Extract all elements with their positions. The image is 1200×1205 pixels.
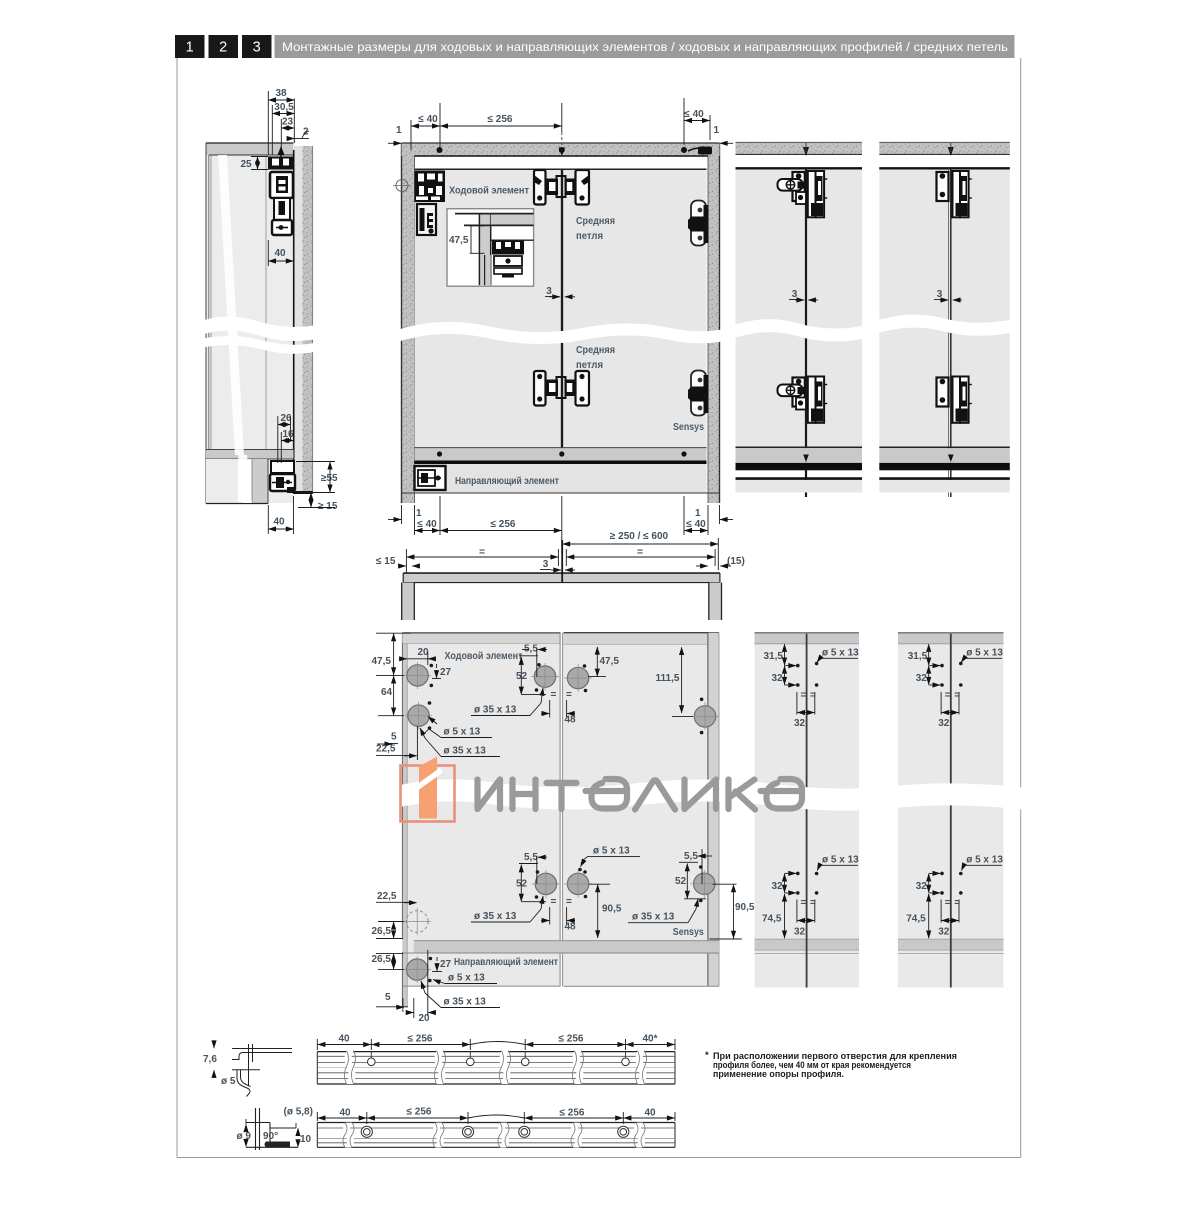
svg-text:40: 40 <box>338 1034 350 1045</box>
svg-text:≤ 256: ≤ 256 <box>559 1034 584 1045</box>
svg-text:ø 5 x 13: ø 5 x 13 <box>822 855 859 866</box>
svg-text:52: 52 <box>516 879 528 890</box>
svg-text:Средняя: Средняя <box>576 344 615 356</box>
svg-text:3: 3 <box>543 559 549 570</box>
svg-text:22,5: 22,5 <box>376 744 396 755</box>
svg-text:ø 9: ø 9 <box>237 1131 252 1142</box>
svg-text:=: = <box>637 547 643 558</box>
svg-text:32: 32 <box>794 718 806 729</box>
svg-text:22,5: 22,5 <box>377 891 397 902</box>
svg-text:Направляющий элемент: Направляющий элемент <box>455 475 559 487</box>
svg-text:ø 5 x 13: ø 5 x 13 <box>448 973 485 984</box>
svg-text:30,5: 30,5 <box>274 102 294 113</box>
svg-text:64: 64 <box>381 687 393 698</box>
svg-text:≤ 256: ≤ 256 <box>408 1034 433 1045</box>
svg-text:Монтажные размеры для ходовых: Монтажные размеры для ходовых и направля… <box>282 40 1008 54</box>
svg-text:≤ 40: ≤ 40 <box>417 519 437 530</box>
svg-text:20: 20 <box>417 647 429 658</box>
svg-text:≤ 40: ≤ 40 <box>686 519 706 530</box>
svg-text:Ходовой элемент: Ходовой элемент <box>445 650 523 662</box>
svg-text:74,5: 74,5 <box>762 914 782 925</box>
svg-text:48: 48 <box>565 715 577 726</box>
svg-text:32: 32 <box>772 673 784 684</box>
svg-text:≤ 256: ≤ 256 <box>488 114 513 125</box>
svg-text:1: 1 <box>416 508 422 519</box>
svg-text:≤ 40: ≤ 40 <box>418 114 438 125</box>
svg-text:23: 23 <box>282 117 294 128</box>
svg-text:Средняя: Средняя <box>576 215 615 227</box>
svg-text:1: 1 <box>396 125 402 136</box>
svg-text:38: 38 <box>275 88 287 99</box>
svg-text:3: 3 <box>937 289 943 300</box>
svg-text:2: 2 <box>303 127 309 138</box>
svg-text:40: 40 <box>339 1108 351 1119</box>
svg-text:90,5: 90,5 <box>735 902 755 913</box>
svg-text:40: 40 <box>274 248 286 259</box>
svg-text:40: 40 <box>273 517 285 528</box>
svg-text:40: 40 <box>644 1108 656 1119</box>
svg-text:≤ 256: ≤ 256 <box>407 1107 432 1118</box>
svg-text:16: 16 <box>282 429 294 440</box>
svg-text:≤ 15: ≤ 15 <box>376 556 396 567</box>
svg-text:=: = <box>566 897 572 908</box>
svg-text:25: 25 <box>240 159 252 170</box>
svg-text:ø 35 x 13: ø 35 x 13 <box>474 911 517 922</box>
svg-text:40*: 40* <box>642 1034 657 1045</box>
svg-text:1: 1 <box>186 40 194 56</box>
svg-text:52: 52 <box>675 876 687 887</box>
svg-text:5,5: 5,5 <box>524 852 538 863</box>
svg-text:применение опоры профиля.: применение опоры профиля. <box>713 1068 844 1079</box>
svg-text:27: 27 <box>440 667 452 678</box>
svg-text:2: 2 <box>219 40 227 56</box>
svg-text:=: = <box>566 690 572 701</box>
svg-text:≤ 40: ≤ 40 <box>684 109 704 120</box>
svg-text:7,6: 7,6 <box>203 1054 217 1065</box>
svg-text:=: = <box>551 690 557 701</box>
svg-text:ø 5: ø 5 <box>221 1076 236 1087</box>
svg-text:3: 3 <box>253 40 261 56</box>
svg-text:27: 27 <box>440 959 452 970</box>
svg-text:ø 5 x 13: ø 5 x 13 <box>593 845 630 856</box>
svg-text:петля: петля <box>576 359 603 371</box>
svg-text:(ø 5,8): (ø 5,8) <box>284 1107 313 1118</box>
svg-text:26,5: 26,5 <box>372 954 392 965</box>
svg-text:петля: петля <box>576 230 603 242</box>
svg-text:=: = <box>810 690 816 701</box>
svg-text:26,5: 26,5 <box>372 926 392 937</box>
svg-text:ø 35 x 13: ø 35 x 13 <box>474 705 517 716</box>
svg-text:=: = <box>551 897 557 908</box>
svg-text:Sensys: Sensys <box>673 926 704 938</box>
svg-text:ø 5 x 13: ø 5 x 13 <box>444 727 481 738</box>
svg-text:≥ 250 / ≤ 600: ≥ 250 / ≤ 600 <box>610 531 669 542</box>
svg-text:*: * <box>705 1049 709 1060</box>
svg-text:ø 35 x 13: ø 35 x 13 <box>444 997 487 1008</box>
svg-text:ø 5 x 13: ø 5 x 13 <box>822 648 859 659</box>
svg-text:31,5: 31,5 <box>764 651 784 662</box>
svg-text:Sensys: Sensys <box>673 421 704 433</box>
svg-text:=: = <box>479 547 485 558</box>
svg-text:90°: 90° <box>263 1131 278 1142</box>
svg-text:47,5: 47,5 <box>372 656 392 667</box>
svg-text:32: 32 <box>794 927 806 938</box>
svg-text:ø 35 x 13: ø 35 x 13 <box>444 746 487 757</box>
svg-text:=: = <box>801 898 807 909</box>
svg-text:32: 32 <box>772 881 784 892</box>
svg-text:≤ 256: ≤ 256 <box>491 519 516 530</box>
svg-text:5: 5 <box>385 992 391 1003</box>
svg-text:=: = <box>801 690 807 701</box>
svg-text:47,5: 47,5 <box>600 656 620 667</box>
svg-text:5,5: 5,5 <box>524 644 538 655</box>
svg-text:1: 1 <box>714 125 720 136</box>
svg-text:20: 20 <box>418 1013 430 1024</box>
svg-text:=: = <box>810 898 816 909</box>
svg-text:3: 3 <box>792 289 798 300</box>
svg-text:Направляющий элемент: Направляющий элемент <box>454 956 558 968</box>
svg-text:≥ 15: ≥ 15 <box>318 501 338 512</box>
svg-text:(15): (15) <box>727 556 745 567</box>
svg-text:52: 52 <box>516 671 528 682</box>
svg-text:10: 10 <box>300 1134 312 1145</box>
svg-text:1: 1 <box>695 508 701 519</box>
svg-text:Ходовой элемент: Ходовой элемент <box>449 185 529 197</box>
svg-text:≤ 256: ≤ 256 <box>560 1108 585 1119</box>
svg-text:47,5: 47,5 <box>449 235 469 246</box>
svg-text:90,5: 90,5 <box>602 904 622 915</box>
svg-text:3: 3 <box>546 286 552 297</box>
svg-text:ø 35 x 13: ø 35 x 13 <box>632 912 675 923</box>
svg-text:5: 5 <box>391 732 397 743</box>
svg-text:48: 48 <box>565 922 577 933</box>
svg-text:5,5: 5,5 <box>684 851 698 862</box>
svg-text:≥55: ≥55 <box>321 473 338 484</box>
svg-text:111,5: 111,5 <box>656 673 680 684</box>
